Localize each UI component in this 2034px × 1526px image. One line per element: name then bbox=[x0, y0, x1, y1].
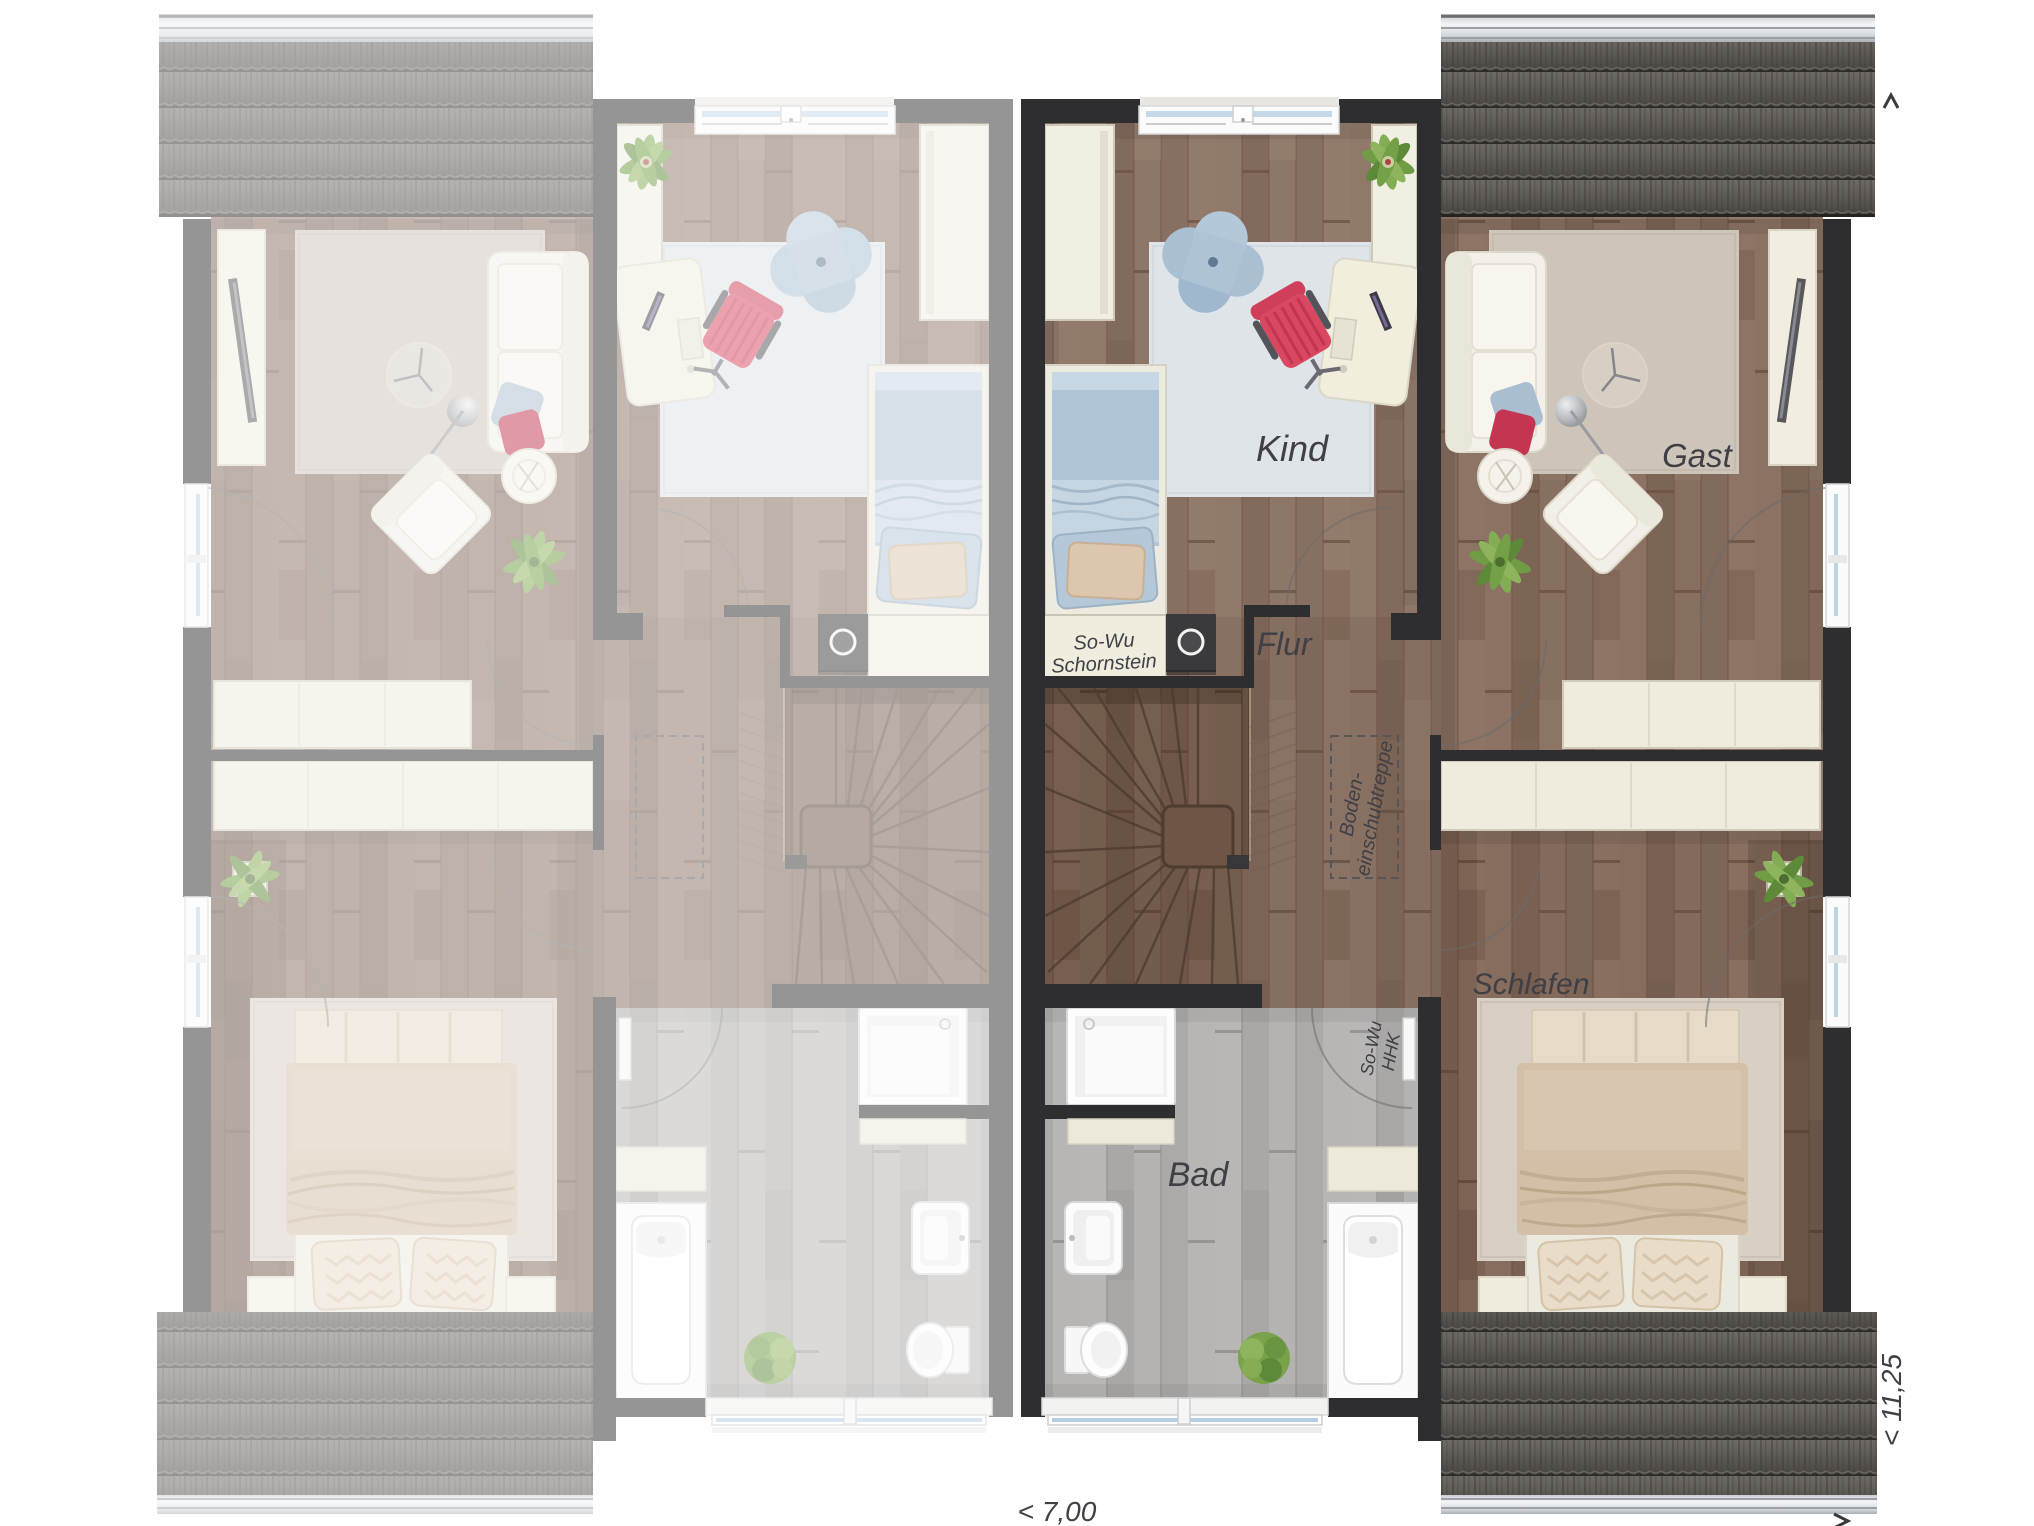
svg-text:< 7,00: < 7,00 bbox=[1018, 1496, 1097, 1526]
svg-text:Flur: Flur bbox=[1256, 626, 1312, 662]
svg-text:< 11,25: < 11,25 bbox=[1876, 1354, 1907, 1447]
svg-text:Kind: Kind bbox=[1256, 428, 1329, 469]
svg-text:So-Wu: So-Wu bbox=[1073, 629, 1135, 654]
svg-text:Schlafen: Schlafen bbox=[1473, 968, 1590, 1001]
svg-text:Gast: Gast bbox=[1662, 437, 1734, 474]
svg-text:Bad: Bad bbox=[1168, 1156, 1230, 1194]
